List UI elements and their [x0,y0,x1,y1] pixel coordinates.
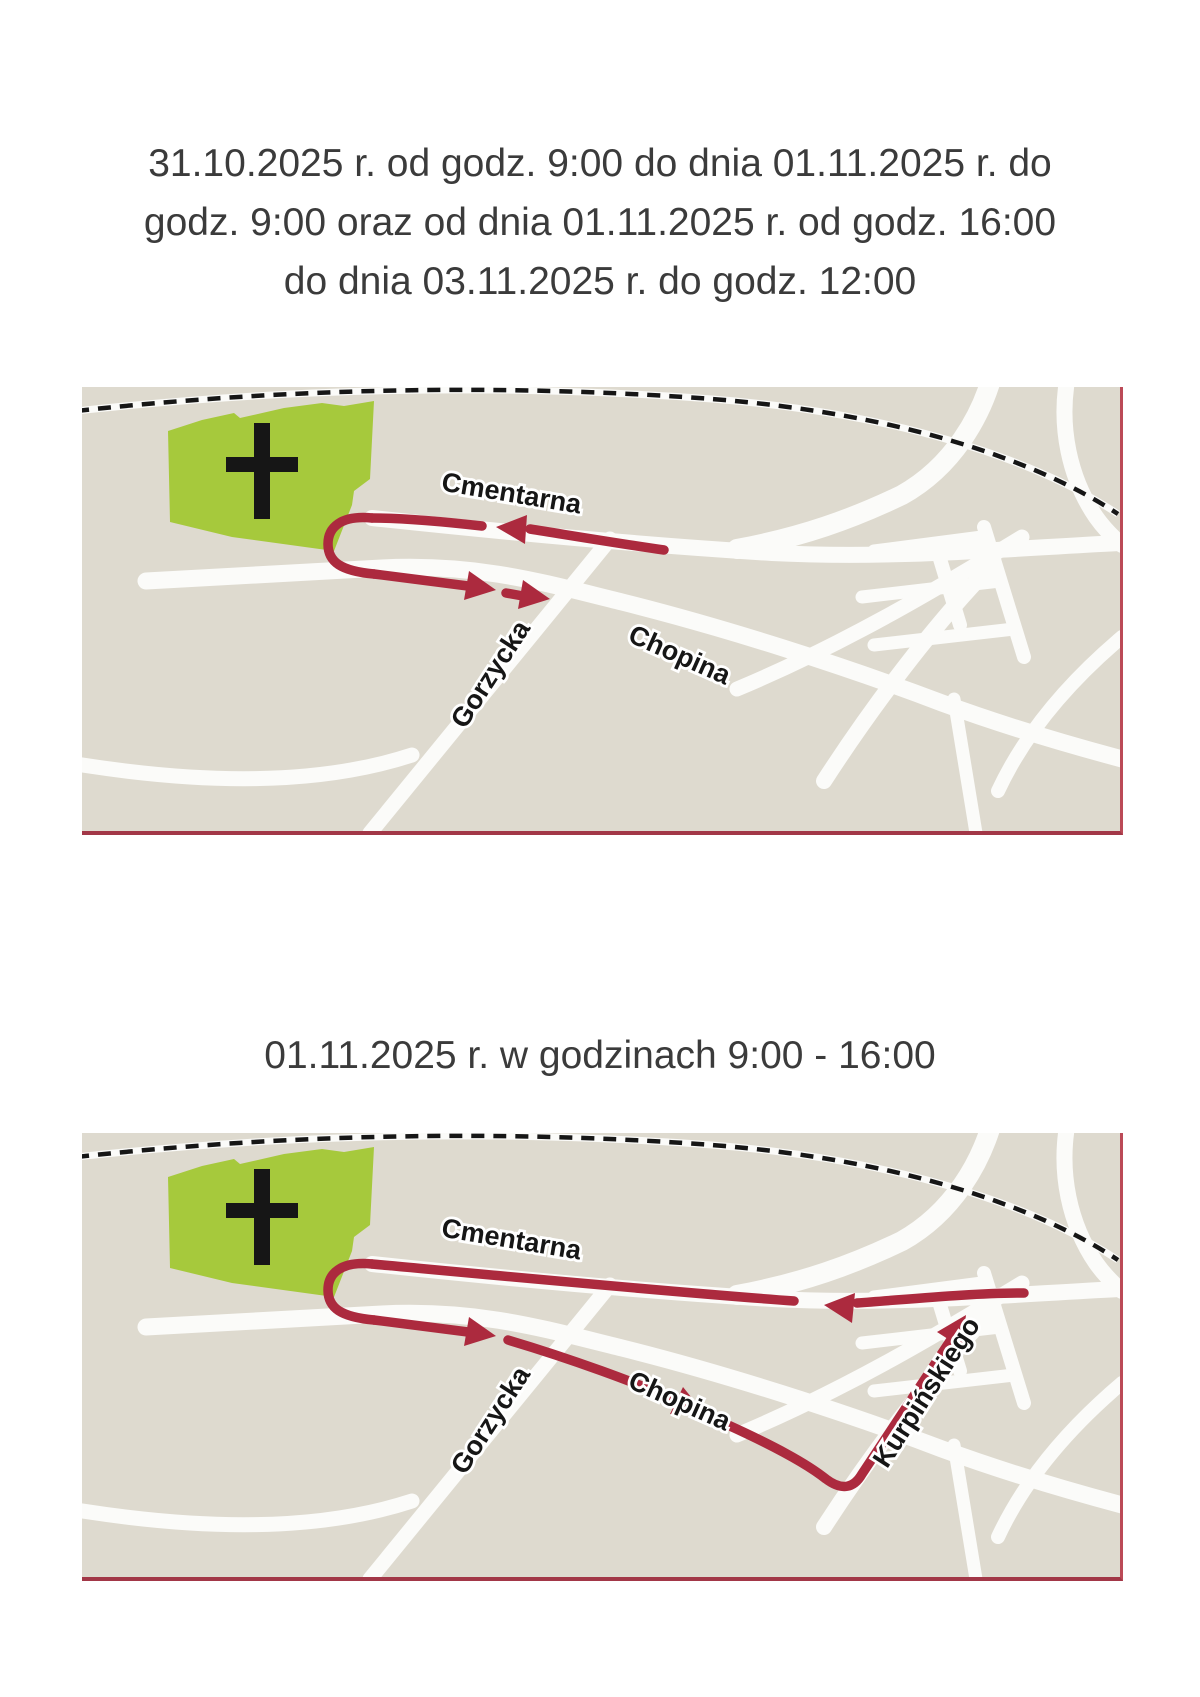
road-southeast-curve [998,1383,1120,1537]
road-cemetery-access [146,567,1120,759]
cemetery-area [168,401,374,551]
road-side-rung [862,581,1000,597]
road-east-edge [1064,1133,1120,1291]
cemetery-grounds [168,1147,374,1297]
cross-horizontal [226,1203,298,1218]
road-south-curve [82,755,412,779]
detour-period-1-heading: 31.10.2025 r. od godz. 9:00 do dnia 01.1… [0,134,1200,311]
street-label-cmentarna: Cmentarna [439,1213,584,1266]
road-southeast-curve [998,637,1120,791]
street-label-cmentarna: Cmentarna [439,467,584,520]
street-label-gorzycka: Gorzycka [445,1360,537,1479]
road-north-curve [737,387,994,549]
heading-line: 01.11.2025 r. w godzinach 9:00 - 16:00 [0,1026,1200,1085]
heading-line: godz. 9:00 oraz od dnia 01.11.2025 r. od… [0,193,1200,252]
heading-line: 31.10.2025 r. od godz. 9:00 do dnia 01.1… [0,134,1200,193]
detour-period-2-heading: 01.11.2025 r. w godzinach 9:00 - 16:00 [0,1026,1200,1085]
route-path [372,1264,794,1301]
cross-horizontal [226,457,298,472]
detour-map-2-canvas: Cmentarna Gorzycka Chopina Kurpińskiego [82,1133,1120,1577]
cemetery-grounds [168,401,374,551]
cemetery-area [168,1147,374,1297]
detour-map-2: Cmentarna Gorzycka Chopina Kurpińskiego [82,1133,1123,1581]
road-south-curve [82,1501,412,1525]
street-label-gorzycka: Gorzycka [445,614,537,733]
detour-map-1-canvas: Cmentarna Gorzycka Chopina [82,387,1120,831]
road-east-edge [1064,387,1120,545]
road-side-rung [874,629,1014,645]
detour-map-1: Cmentarna Gorzycka Chopina [82,387,1123,835]
road-north-curve [737,1133,994,1295]
heading-line: do dnia 03.11.2025 r. do godz. 12:00 [0,252,1200,311]
